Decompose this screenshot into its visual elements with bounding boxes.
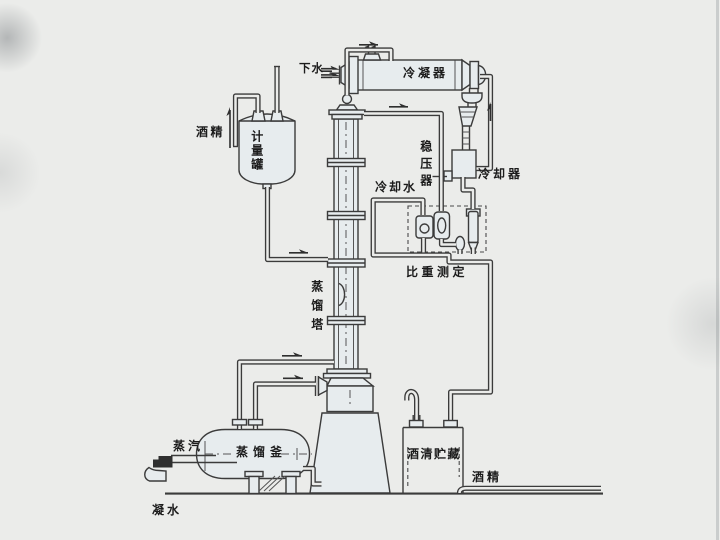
label-steam: 蒸汽: [173, 440, 203, 454]
condenser-left-flange: [349, 57, 358, 94]
label-distillation-kettle: 蒸馏釜: [236, 446, 287, 460]
label-condenser: 冷凝器: [403, 67, 448, 81]
column-top-sphere: [343, 95, 352, 104]
vapor-inlet-fitting: [316, 376, 328, 396]
condenser-right-flange: [470, 62, 479, 89]
process-flow-artwork: [0, 0, 720, 540]
column-skirt: [310, 413, 390, 493]
device-hydrometer: [469, 212, 479, 243]
device-sight-glass: [434, 212, 450, 239]
alcohol-feed-up-arrow: [226, 107, 230, 148]
label-distillation-tower: 蒸馏塔: [309, 280, 323, 337]
label-drain-water: 下水: [299, 62, 324, 75]
condensate-trap: [145, 468, 166, 482]
label-stabilizer: 稳压器: [418, 140, 432, 191]
cooler-box: [452, 150, 476, 178]
separator-collar: [462, 93, 482, 103]
metering-tank: [239, 111, 295, 189]
label-condensate: 凝水: [152, 504, 182, 518]
label-alcohol-feed: 酒精: [196, 126, 225, 140]
label-cooler: 冷却器: [478, 168, 523, 182]
device-flowmeter: [416, 216, 433, 238]
device-bulb: [456, 237, 465, 251]
label-metering-tank: 计量罐: [249, 130, 263, 172]
label-alcohol-out: 酒精: [472, 471, 502, 485]
condenser-top-nozzle: [364, 54, 381, 60]
label-alcohol-storage: 酒清贮藏: [407, 448, 461, 462]
label-cooling-water: 冷却水: [375, 181, 417, 195]
label-gravity-measurement: 比重测定: [406, 266, 468, 280]
scan-edge-artifact: [716, 0, 719, 540]
column-neck: [327, 386, 373, 412]
diagram-canvas: 下水 冷凝器 酒精 计量罐 稳压器 冷却水 冷却器 比重测定 蒸馏塔 蒸馏釜 蒸…: [0, 0, 720, 540]
